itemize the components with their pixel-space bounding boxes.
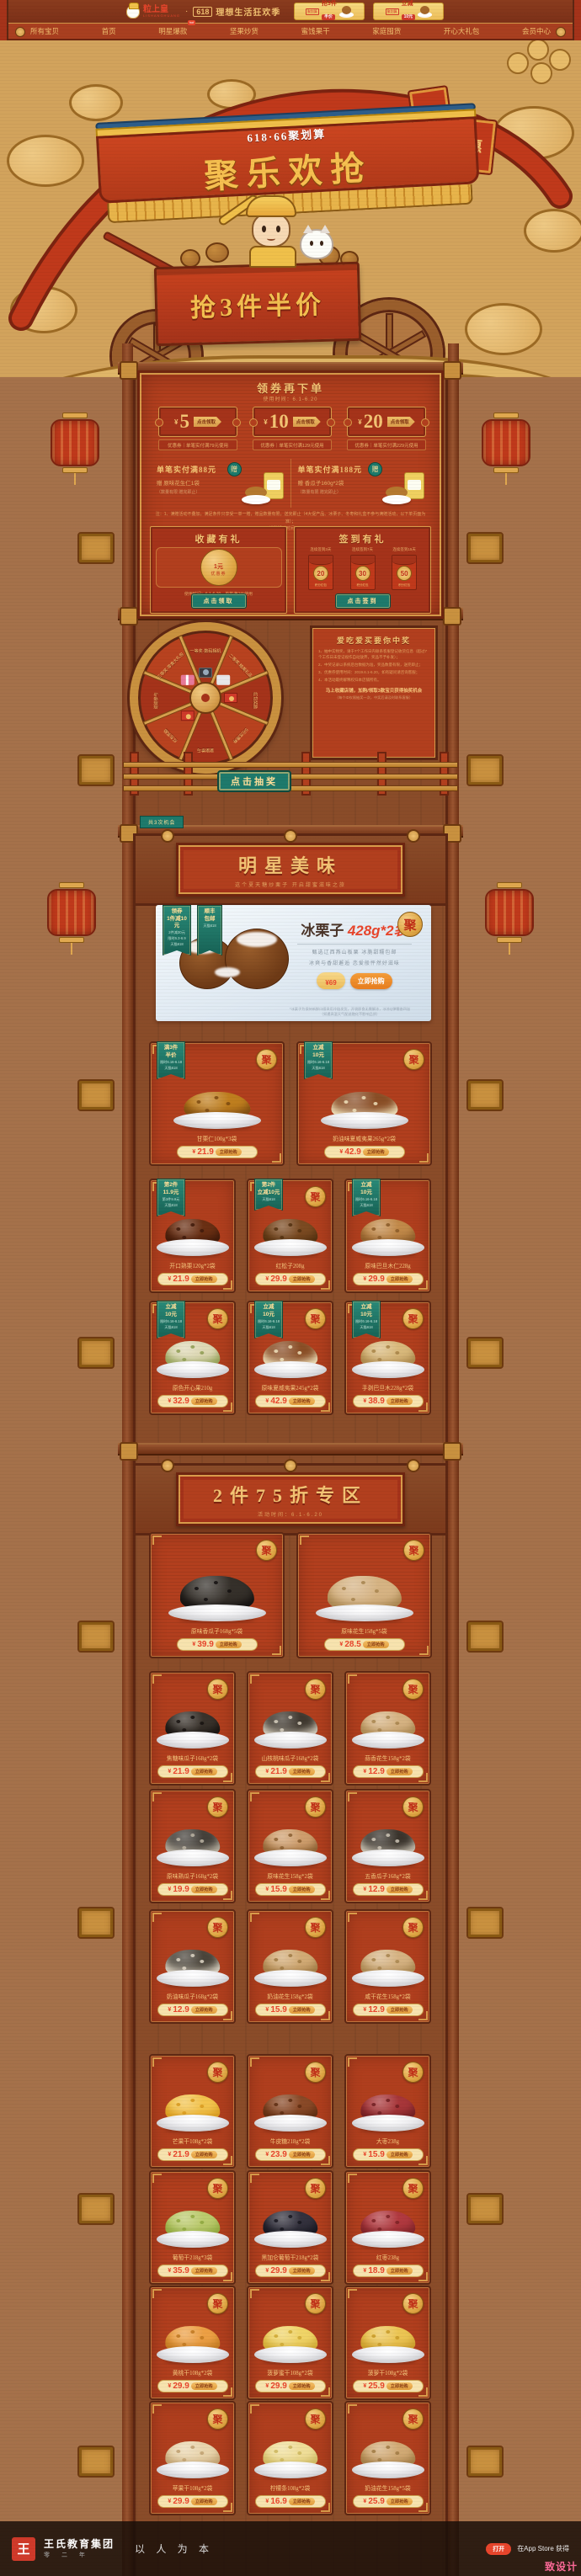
- juhuasuan-badge: 聚: [402, 2293, 424, 2314]
- texture-dot: [386, 1223, 390, 1227]
- texture-dot: [371, 2219, 376, 2222]
- texture-dot: [214, 1581, 218, 1584]
- white-dish: [321, 1112, 408, 1129]
- currency-symbol: ¥: [363, 2499, 366, 2504]
- texture-dot: [371, 1227, 376, 1231]
- nav-item-1[interactable]: 首页: [102, 26, 116, 36]
- price-pill: ¥42.9立即抢购: [324, 1146, 405, 1158]
- currency-symbol: ¥: [358, 418, 361, 426]
- product-image: [254, 1213, 327, 1257]
- texture-dot: [371, 1838, 376, 1841]
- texture-dot: [371, 2103, 376, 2106]
- gift-badge-icon: 赠: [227, 462, 242, 476]
- buy-button[interactable]: 立即抢购: [191, 2151, 217, 2158]
- fence-rail: [123, 762, 458, 768]
- texture-dot: [176, 2450, 180, 2453]
- price-value: 19.9: [173, 1885, 189, 1894]
- ribbon-line: 限时6.16-6.18: [354, 1319, 379, 1324]
- claim-button[interactable]: 点击领取: [293, 417, 321, 427]
- footer-open-button[interactable]: 打开: [486, 2543, 511, 2555]
- buy-button[interactable]: 立即抢购: [191, 1275, 217, 1283]
- product-card[interactable]: 第2件立减10元天猫618聚红松子208g¥29.9立即抢购: [247, 1179, 333, 1293]
- dish-icon: [242, 495, 270, 504]
- product-name: 柠檬条108g*2袋: [251, 2483, 329, 2492]
- star-section-title: 明星美味: [238, 851, 343, 878]
- hero-banner: 惠 惠 惠 618·66聚划算 聚乐欢抢: [0, 40, 581, 377]
- claim-button[interactable]: 点击领取: [387, 417, 415, 427]
- texture-dot: [386, 2099, 390, 2102]
- buy-button[interactable]: 立即抢购: [216, 1148, 242, 1156]
- signin-label: 连续签到3天: [300, 547, 342, 552]
- currency-symbol: ¥: [363, 2383, 366, 2389]
- topbar-card-line2: 半价: [322, 14, 335, 20]
- white-dish: [254, 2115, 327, 2132]
- buy-button[interactable]: 立即抢购: [191, 1397, 217, 1405]
- discount-section-plaque: 2件75折专区 活动时间：6.1-6.20: [176, 1472, 405, 1526]
- nav-items: 所有宝贝首页明星爆款hot坚果炒货蜜饯果干家庭囤货开心大礼包会员中心: [0, 24, 581, 39]
- texture-dot: [274, 2334, 278, 2338]
- product-image: [254, 2435, 327, 2479]
- star-section-header: 明星美味 这个夏天糖炒栗子 开启甜蜜滋味之旅: [133, 833, 448, 906]
- texture-dot: [396, 1229, 400, 1232]
- hero-product-name: 冰栗子: [301, 923, 344, 939]
- brand-logo-icon[interactable]: [126, 5, 140, 19]
- nav-item-0[interactable]: 所有宝贝: [30, 26, 59, 36]
- topbar-card-text: 抢3件半价: [322, 1, 337, 22]
- buy-button[interactable]: 立即抢购: [191, 2267, 217, 2275]
- juhuasuan-badge: 聚: [402, 2178, 424, 2199]
- texture-dot: [200, 1351, 205, 1355]
- separator-dot: ·: [185, 7, 188, 16]
- buy-button[interactable]: 立即抢购: [289, 2151, 315, 2158]
- product-card[interactable]: 聚苹果干108g*2袋¥29.9立即抢购: [149, 2401, 236, 2515]
- product-image: [352, 2320, 424, 2364]
- brand-name: 粒上皇: [143, 6, 180, 14]
- ribbon-line: 立减: [354, 1304, 379, 1311]
- currency-symbol: ¥: [339, 1642, 343, 1647]
- footer-sub: 零 二 年: [44, 2552, 115, 2561]
- coupon-stub[interactable]: ¥20点击领取: [347, 407, 426, 437]
- juhuasuan-badge: 聚: [402, 1917, 424, 1938]
- topbar-coupon-card-1[interactable]: 聚划算立减10元: [373, 3, 444, 20]
- product-image: [254, 1823, 327, 1867]
- discount-section-title: 2件75折专区: [213, 1481, 368, 1508]
- carved-bracket: [77, 1907, 115, 1939]
- buy-button[interactable]: 立即抢购: [386, 2498, 413, 2505]
- currency-symbol: ¥: [264, 418, 267, 426]
- texture-dot: [227, 1102, 231, 1105]
- texture-dot: [288, 1834, 292, 1837]
- buy-button[interactable]: 立即抢购: [386, 2006, 413, 2014]
- cart-promo-text: 抢3件半价: [189, 284, 325, 324]
- juhuasuan-badge: 聚: [402, 1308, 424, 1329]
- product-card[interactable]: 聚菠萝蜜干108g*2袋¥29.9立即抢购: [247, 2286, 333, 2400]
- price-value: 29.9: [270, 2266, 286, 2275]
- ribbon-line: 满3件: [158, 1045, 184, 1051]
- juhuasuan-tag: 聚划算: [386, 8, 399, 15]
- buy-button[interactable]: 立即抢购: [386, 2151, 413, 2158]
- product-card[interactable]: 聚红枣238g¥18.9立即抢购: [344, 2170, 431, 2285]
- promo-ribbon: 立减10元限时6.16-6.18天猫618: [157, 1301, 185, 1339]
- currency-symbol: ¥: [174, 418, 178, 426]
- juhuasuan-badge: 聚: [402, 2062, 424, 2083]
- gift-note-line1: 注：1、满赠活动不叠加，满足条件只享受一单一赠，赠品数量有限，送完即止（4大促产…: [153, 511, 428, 525]
- currency-symbol: ¥: [168, 1887, 171, 1892]
- product-name: 菠萝干108g*2袋: [349, 2368, 427, 2376]
- texture-dot: [298, 1839, 302, 1843]
- buy-button[interactable]: 立即抢购: [289, 1768, 315, 1775]
- product-card[interactable]: 聚原味熟瓜子168g*2袋¥19.9立即抢购: [149, 1789, 236, 1903]
- product-card[interactable]: 聚奶油味瓜子168g*2袋¥12.9立即抢购: [149, 1909, 236, 2024]
- price-value: 38.9: [368, 1397, 384, 1406]
- promo-ribbon: 立减10元限时6.16-6.18天猫618: [352, 1179, 381, 1216]
- boy-body-illustration: [249, 246, 296, 268]
- juhuasuan-badge: 聚: [305, 1679, 326, 1700]
- texture-dot: [204, 1598, 208, 1601]
- buy-button[interactable]: 立即抢购: [216, 1641, 242, 1648]
- currency-symbol: ¥: [265, 1769, 269, 1775]
- white-dish: [157, 1239, 229, 1256]
- price-value: 29.9: [270, 1275, 286, 1284]
- product-name: 五香瓜子168g*2袋: [349, 1871, 427, 1880]
- texture-dot: [386, 1345, 390, 1349]
- product-card[interactable]: 聚山核桃味瓜子168g*2袋¥21.9立即抢购: [247, 1671, 333, 1786]
- product-card[interactable]: 聚奶油花生158g*5袋¥25.9立即抢购: [344, 2401, 431, 2515]
- price-value: 12.9: [368, 1885, 384, 1894]
- gift-product-graphic: [242, 472, 285, 506]
- product-card[interactable]: 聚牛皮糖218g*2袋¥23.9立即抢购: [247, 2054, 333, 2169]
- product-thumb-icon: [418, 6, 432, 18]
- white-dish: [254, 2346, 327, 2363]
- buy-button[interactable]: 立即抢购: [289, 2006, 315, 2014]
- cloud-illustration: [524, 209, 581, 253]
- product-card[interactable]: 第2件11.9元第3件9.9元天猫618开口熟栗120g*2袋¥21.9立即抢购: [149, 1179, 236, 1293]
- gift-panel-0[interactable]: 赠单笔实付满88元赠 原味花生仁1袋（数量有限 赠完即止）: [150, 459, 290, 508]
- ribbon-line: 天猫618: [164, 942, 189, 947]
- white-dish: [352, 2346, 424, 2363]
- product-row: 满3件半价限时6.16-6.18天猫618聚甘栗仁100g*3袋¥21.9立即抢…: [149, 1041, 432, 1166]
- texture-dot: [200, 2105, 205, 2108]
- price-pill: ¥38.9立即抢购: [353, 1395, 424, 1408]
- ribbon-line: 天猫618: [256, 1197, 281, 1202]
- nav-item-4[interactable]: 蜜饯果干: [301, 26, 330, 36]
- ribbon-line: 天猫618: [256, 1325, 281, 1330]
- white-dish: [352, 1361, 424, 1378]
- product-name: 焦糖味瓜子168g*2袋: [153, 1754, 232, 1762]
- texture-dot: [274, 1349, 278, 1353]
- white-dish: [157, 2231, 229, 2248]
- texture-dot: [298, 1960, 302, 1963]
- texture-dot: [200, 1722, 205, 1725]
- texture-dot: [344, 1100, 349, 1104]
- product-card[interactable]: 立减10元限时6.16-6.18天猫618聚手剥巴旦木228g*2袋¥38.9立…: [344, 1301, 431, 1415]
- hero-buy-button[interactable]: 立即抢购: [350, 973, 392, 989]
- product-card[interactable]: 聚大枣238g¥15.9立即抢购: [344, 2054, 431, 2169]
- carved-bracket: [466, 1621, 504, 1653]
- product-card[interactable]: 聚奶油花生158g*2袋¥15.9立即抢购: [247, 1909, 333, 2024]
- carved-bracket: [466, 532, 504, 564]
- product-name: 原色开心果210g: [153, 1383, 232, 1392]
- juhuasuan-badge: 聚: [207, 2178, 228, 2199]
- texture-dot: [200, 2451, 205, 2455]
- texture-dot: [371, 2334, 376, 2338]
- price-pill: ¥12.9立即抢购: [353, 1883, 424, 1896]
- ribbon-line: 天猫618: [354, 1203, 379, 1208]
- juhuasuan-badge: 聚: [403, 1049, 424, 1070]
- design-watermark: 致设计: [545, 2559, 578, 2573]
- hot-badge: hot: [188, 20, 196, 25]
- product-name: 葡萄干218g*3袋: [153, 2253, 232, 2261]
- signin-unit: 积分红包: [392, 583, 416, 588]
- product-card[interactable]: 聚原味花生158g*5袋¥28.5立即抢购: [296, 1532, 432, 1658]
- ribbon-line: 限时6.16-6.18: [354, 1197, 379, 1202]
- hero-ribbons: 领券1件减10元2件减30元限时6.3-6.9天猫618顺丰包邮天猫618: [163, 905, 222, 955]
- draw-chances-tag: 共3次机会: [140, 816, 184, 828]
- footer-logo: 王: [12, 2537, 35, 2561]
- product-name: 苹果干108g*2袋: [153, 2483, 232, 2492]
- product-name: 手剥巴旦木228g*2袋: [349, 1383, 427, 1392]
- product-card[interactable]: 聚黑加仑葡萄干218g*2袋¥29.9立即抢购: [247, 2170, 333, 2285]
- juhuasuan-badge: 聚: [305, 2293, 326, 2314]
- price-pill: ¥42.9立即抢购: [255, 1395, 326, 1408]
- product-card[interactable]: 聚原味香瓜子168g*5袋¥39.9立即抢购: [149, 1532, 285, 1658]
- product-card[interactable]: 聚菠萝干108g*2袋¥25.9立即抢购: [344, 2286, 431, 2400]
- product-card[interactable]: 聚柠檬条108g*2袋¥16.9立即抢购: [247, 2401, 333, 2515]
- signin-row: 连续签到3天20积分红包连续签到7天30积分红包连续签到15天50积分红包: [300, 547, 425, 590]
- texture-dot: [176, 2103, 180, 2106]
- product-image: [352, 1823, 424, 1867]
- texture-dot: [298, 2105, 302, 2108]
- white-dish: [254, 1239, 327, 1256]
- footer-watermark-bar: 王 王氏教育集团 零 二 年 以 人 为 本 打开 在App Store 获得: [0, 2521, 581, 2576]
- coupon-stub[interactable]: ¥10点击领取: [253, 407, 332, 437]
- buy-button[interactable]: 立即抢购: [191, 1768, 217, 1775]
- product-card[interactable]: 立减10元限时6.16-6.18天猫618聚奶油味夏威夷果265g*2袋¥42.…: [296, 1041, 432, 1166]
- signin-gift-title: 签到有礼: [295, 532, 430, 546]
- nut-illustration: [180, 249, 200, 268]
- ribbon-line: 限时6.16-6.18: [256, 1319, 281, 1324]
- coupon-condition: 优惠券｜单笔实付满129元使用: [253, 439, 332, 450]
- gift-panel-1[interactable]: 赠单笔实付满188元赠 香瓜子160g*2袋（数量有限 赠完即止）: [290, 459, 432, 508]
- ribbon-line: 立减: [306, 1045, 331, 1051]
- product-card[interactable]: 立减10元限时6.16-6.18天猫618聚原色开心果210g¥32.9立即抢购: [149, 1301, 236, 1415]
- frost-illustration: [215, 967, 240, 977]
- buy-button[interactable]: 立即抢购: [386, 1275, 413, 1283]
- buy-button[interactable]: 立即抢购: [191, 2498, 217, 2505]
- price-value: 15.9: [368, 2150, 384, 2159]
- texture-dot: [190, 1834, 195, 1837]
- product-name: 奶油花生158g*5袋: [349, 2483, 427, 2492]
- hero-fine-line2: （如遇高温天气配送融化不影响品质）: [274, 1012, 426, 1018]
- texture-dot: [288, 1345, 292, 1349]
- ribbon-line: 包邮: [199, 916, 221, 923]
- promo-ribbon: 立减10元限时6.16-6.18天猫618: [352, 1301, 381, 1339]
- rules-title: 爱吃爱买要你中奖: [318, 635, 429, 646]
- product-card[interactable]: 聚五香瓜子168g*2袋¥12.9立即抢购: [344, 1789, 431, 1903]
- product-image: [352, 1944, 424, 1988]
- juhuasuan-badge: 聚: [207, 2293, 228, 2314]
- product-card[interactable]: 聚焦糖味瓜子168g*2袋¥21.9立即抢购: [149, 1671, 236, 1786]
- product-card[interactable]: 聚葡萄干218g*3袋¥35.9立即抢购: [149, 2170, 236, 2285]
- buy-button[interactable]: 立即抢购: [289, 2382, 315, 2390]
- product-image: [352, 2205, 424, 2249]
- brand-logo[interactable]: 粒上皇 LISHANGHUANG: [143, 6, 180, 18]
- buy-button[interactable]: 立即抢购: [191, 2382, 217, 2390]
- product-image: [352, 1706, 424, 1749]
- product-card[interactable]: 聚蒜香花生158g*2袋¥12.9立即抢购: [344, 1671, 431, 1786]
- cloud-illustration: [465, 303, 542, 355]
- rule-line: 4、本活动最终解释权归本店铺所有。: [318, 678, 429, 684]
- draw-button[interactable]: 点击抽奖: [217, 770, 291, 792]
- product-name: 红枣238g: [349, 2253, 427, 2261]
- rules-cta-sub: （每个ID仅限抽奖一次，中奖后请及时联系客服）: [318, 695, 429, 700]
- buy-button[interactable]: 立即抢购: [289, 2267, 315, 2275]
- hero-product-banner[interactable]: 领券1件减10元2件减30元限时6.3-6.9天猫618顺丰包邮天猫618 聚 …: [156, 905, 431, 1021]
- price-value: 42.9: [270, 1397, 286, 1406]
- price-pill: ¥15.9立即抢购: [255, 2004, 326, 2016]
- currency-symbol: ¥: [265, 2499, 269, 2504]
- rules-cta: 马上收藏店铺，加购/领取3款宝贝获得抽奖机会: [318, 687, 429, 694]
- currency-symbol: ¥: [363, 1398, 366, 1404]
- texture-dot: [190, 1954, 195, 1957]
- prize-wheel[interactable]: 一等奖·数码相机二等奖·精美礼品红包奖励5元优惠券谢谢参与红包奖励谢谢参与三等奖…: [130, 622, 281, 774]
- texture-dot: [200, 1229, 205, 1232]
- ribbon-line: 立减10元: [256, 1190, 281, 1196]
- buy-button[interactable]: 立即抢购: [386, 2382, 413, 2390]
- top-bar: 粒上皇 LISHANGHUANG · 618 理想生活狂欢季 聚划算抢3件半价聚…: [0, 0, 581, 23]
- ribbon-line: 立减: [158, 1304, 184, 1311]
- product-card[interactable]: 聚黄桃干108g*2袋¥29.9立即抢购: [149, 2286, 236, 2400]
- nav-item-3[interactable]: 坚果炒货: [230, 26, 259, 36]
- half-price-cart[interactable]: 抢3件半价: [154, 262, 361, 346]
- currency-symbol: ¥: [265, 1398, 269, 1404]
- price-value: 42.9: [344, 1147, 360, 1157]
- product-card[interactable]: 立减10元限时6.16-6.18天猫618原味巴旦木仁228g¥29.9立即抢购: [344, 1179, 431, 1293]
- carved-bracket: [77, 532, 115, 564]
- red-lantern: [51, 412, 99, 485]
- buy-button[interactable]: 立即抢购: [386, 1886, 413, 1893]
- carved-bracket: [77, 754, 115, 786]
- coupon-stub[interactable]: ¥5点击领取: [158, 407, 237, 437]
- white-dish: [254, 1361, 327, 1378]
- signin-day-0: 连续签到3天20积分红包: [300, 547, 342, 590]
- white-dish: [157, 2462, 229, 2478]
- product-image: [157, 1823, 229, 1867]
- coupon-coin: 1元 优惠券: [200, 549, 237, 586]
- topbar-card-line1: 抢3件: [322, 1, 337, 7]
- product-card[interactable]: 满3件半价限时6.16-6.18天猫618聚甘栗仁100g*3袋¥21.9立即抢…: [149, 1041, 285, 1166]
- promo-ribbon: 立减10元限时6.16-6.18天猫618: [304, 1041, 333, 1079]
- buy-button[interactable]: 立即抢购: [386, 2267, 413, 2275]
- promo-ribbon: 满3件半价限时6.16-6.18天猫618: [157, 1041, 185, 1079]
- buy-button[interactable]: 立即抢购: [289, 2498, 315, 2505]
- texture-dot: [176, 1838, 180, 1841]
- price-value: 25.9: [368, 2382, 384, 2391]
- topbar-coupon-card-0[interactable]: 聚划算抢3件半价: [294, 3, 365, 20]
- rules-list: 1、抽中实物奖，请于7个工作日内联系客服登记收货信息（超过7个工作日未登记视作自…: [318, 649, 429, 684]
- signin-gift-panel: 签到有礼 连续签到3天20积分红包连续签到7天30积分红包连续签到15天50积分…: [294, 526, 431, 614]
- product-image: [316, 1568, 413, 1622]
- ribbon-line: 顺丰: [199, 908, 221, 915]
- favorite-claim-button[interactable]: 点击领取: [191, 593, 247, 609]
- nav-item-7[interactable]: 会员中心: [522, 26, 551, 36]
- envelope-icon: [181, 711, 195, 721]
- coupon-5-yuan: ¥5点击领取优惠券｜单笔实付满79元使用: [158, 407, 237, 450]
- white-dish: [157, 2346, 229, 2363]
- coin-unit: 元: [217, 564, 223, 570]
- signin-button[interactable]: 点击签到: [335, 593, 391, 609]
- product-name: 黑加仑葡萄干218g*2袋: [251, 2253, 329, 2261]
- ribbon-line: 立减: [256, 1304, 281, 1311]
- signin-points: 20: [313, 566, 328, 581]
- texture-dot: [200, 2221, 205, 2224]
- texture-dot: [274, 2450, 278, 2453]
- buy-button[interactable]: 立即抢购: [386, 1397, 413, 1405]
- carved-bracket: [466, 1337, 504, 1369]
- carved-bracket: [466, 2193, 504, 2225]
- festival-slogan: 理想生活狂欢季: [216, 5, 280, 18]
- signin-unit: 积分红包: [351, 583, 375, 588]
- juhuasuan-badge: 聚: [207, 2408, 228, 2430]
- product-name: 奶油味夏威夷果265g*2袋: [302, 1134, 427, 1142]
- favorite-gift-panel: 收藏有礼 1元 优惠券 使用时间：6.1-6.20，单笔满2元使用 点击领取: [150, 526, 287, 614]
- carved-bracket: [466, 1907, 504, 1939]
- gift-icon: [181, 675, 195, 685]
- texture-dot: [274, 1958, 278, 1961]
- texture-dot: [396, 2221, 400, 2224]
- nav-item-2[interactable]: 明星爆款hot: [158, 26, 187, 36]
- nav-end-medallion: [15, 27, 25, 37]
- texture-dot: [396, 1351, 400, 1355]
- product-image: [254, 2320, 327, 2364]
- buy-button[interactable]: 立即抢购: [363, 1148, 389, 1156]
- buy-button[interactable]: 立即抢购: [289, 1397, 315, 1405]
- product-card[interactable]: 立减10元限时6.16-6.18天猫618聚原味夏威夷果245g*2袋¥42.9…: [247, 1301, 333, 1415]
- buy-button[interactable]: 立即抢购: [386, 1768, 413, 1775]
- buy-button[interactable]: 立即抢购: [289, 1886, 315, 1893]
- buy-button[interactable]: 立即抢购: [191, 2006, 217, 2014]
- product-image: [157, 1335, 229, 1379]
- white-dish: [352, 2115, 424, 2132]
- currency-symbol: ¥: [168, 1276, 171, 1282]
- claim-button[interactable]: 点击领取: [194, 417, 221, 427]
- currency-symbol: ¥: [265, 1276, 269, 1282]
- texture-dot: [396, 2336, 400, 2339]
- ribbon-line: 立减: [354, 1182, 379, 1189]
- texture-dot: [298, 1722, 302, 1725]
- collect-row: 收藏有礼 1元 优惠券 使用时间：6.1-6.20，单笔满2元使用 点击领取 签…: [150, 526, 431, 614]
- texture-dot: [190, 2215, 195, 2218]
- buy-button[interactable]: 立即抢购: [191, 1886, 217, 1893]
- product-image: [254, 1335, 327, 1379]
- product-name: 大枣238g: [349, 2137, 427, 2145]
- buy-button[interactable]: 立即抢购: [289, 1275, 315, 1283]
- texture-dot: [342, 1587, 346, 1590]
- red-lantern: [47, 882, 96, 955]
- coupon-10-yuan: ¥10点击领取优惠券｜单笔实付满129元使用: [253, 407, 332, 450]
- ribbon-line: 第2件: [256, 1182, 281, 1189]
- product-card[interactable]: 聚芒果干108g*2袋¥21.9立即抢购: [149, 2054, 236, 2169]
- ribbon-line: 10元: [306, 1052, 331, 1059]
- price-pill: ¥18.9立即抢购: [353, 2265, 424, 2277]
- product-card[interactable]: 聚咸干花生158g*2袋¥12.9立即抢购: [344, 1909, 431, 2024]
- nav-item-6[interactable]: 开心大礼包: [444, 26, 480, 36]
- nav-item-5[interactable]: 家庭囤货: [372, 26, 401, 36]
- product-card[interactable]: 聚原味花生158g*2袋¥15.9立即抢购: [247, 1789, 333, 1903]
- product-image: [157, 1706, 229, 1749]
- buy-button[interactable]: 立即抢购: [363, 1641, 389, 1648]
- right-edge-pillar: [573, 0, 581, 40]
